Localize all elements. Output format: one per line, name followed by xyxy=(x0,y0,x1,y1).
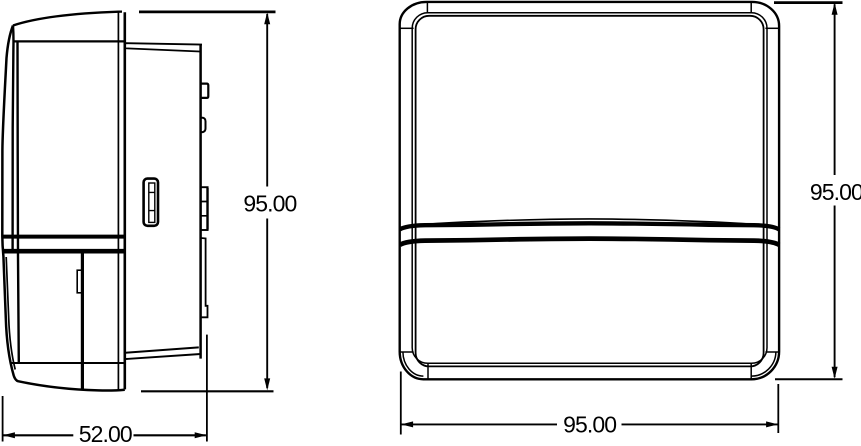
svg-text:95.00: 95.00 xyxy=(810,179,861,205)
svg-text:95.00: 95.00 xyxy=(243,191,296,217)
svg-text:95.00: 95.00 xyxy=(563,411,616,437)
svg-text:52.00: 52.00 xyxy=(79,421,132,446)
